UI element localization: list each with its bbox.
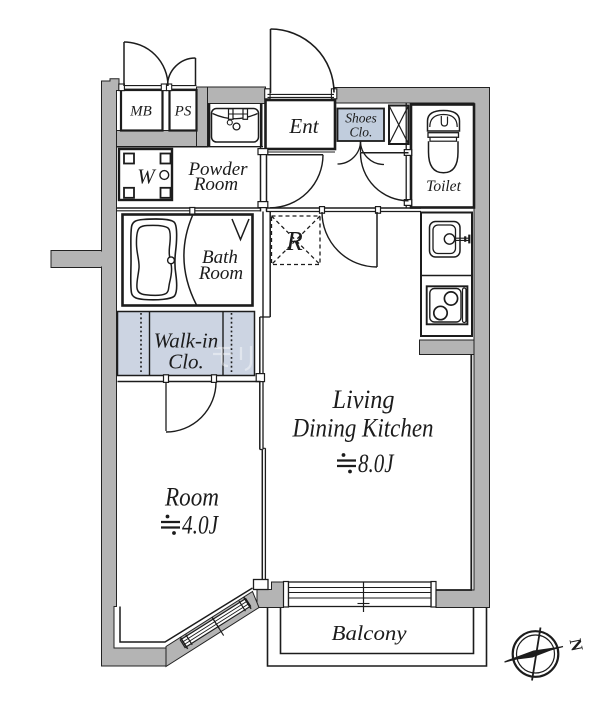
svg-text:Room: Room — [164, 483, 219, 512]
svg-text:8.0J: 8.0J — [358, 449, 395, 478]
svg-text:Toilet: Toilet — [426, 178, 461, 195]
svg-text:4.0J: 4.0J — [182, 511, 219, 540]
svg-text:Room: Room — [198, 263, 243, 284]
svg-text:Clo.: Clo. — [350, 125, 373, 140]
svg-text:Dining Kitchen: Dining Kitchen — [292, 414, 434, 443]
svg-text:Balcony: Balcony — [332, 621, 408, 645]
svg-text:MB: MB — [129, 104, 152, 120]
svg-text:Living: Living — [332, 385, 395, 414]
svg-text:W: W — [137, 165, 157, 189]
svg-text:R: R — [285, 226, 303, 256]
svg-text:PS: PS — [174, 104, 192, 120]
svg-text:Shoes: Shoes — [345, 111, 377, 126]
svg-text:Room: Room — [193, 174, 238, 195]
svg-text:Ent: Ent — [288, 114, 319, 138]
svg-text:Clo.: Clo. — [168, 350, 204, 374]
